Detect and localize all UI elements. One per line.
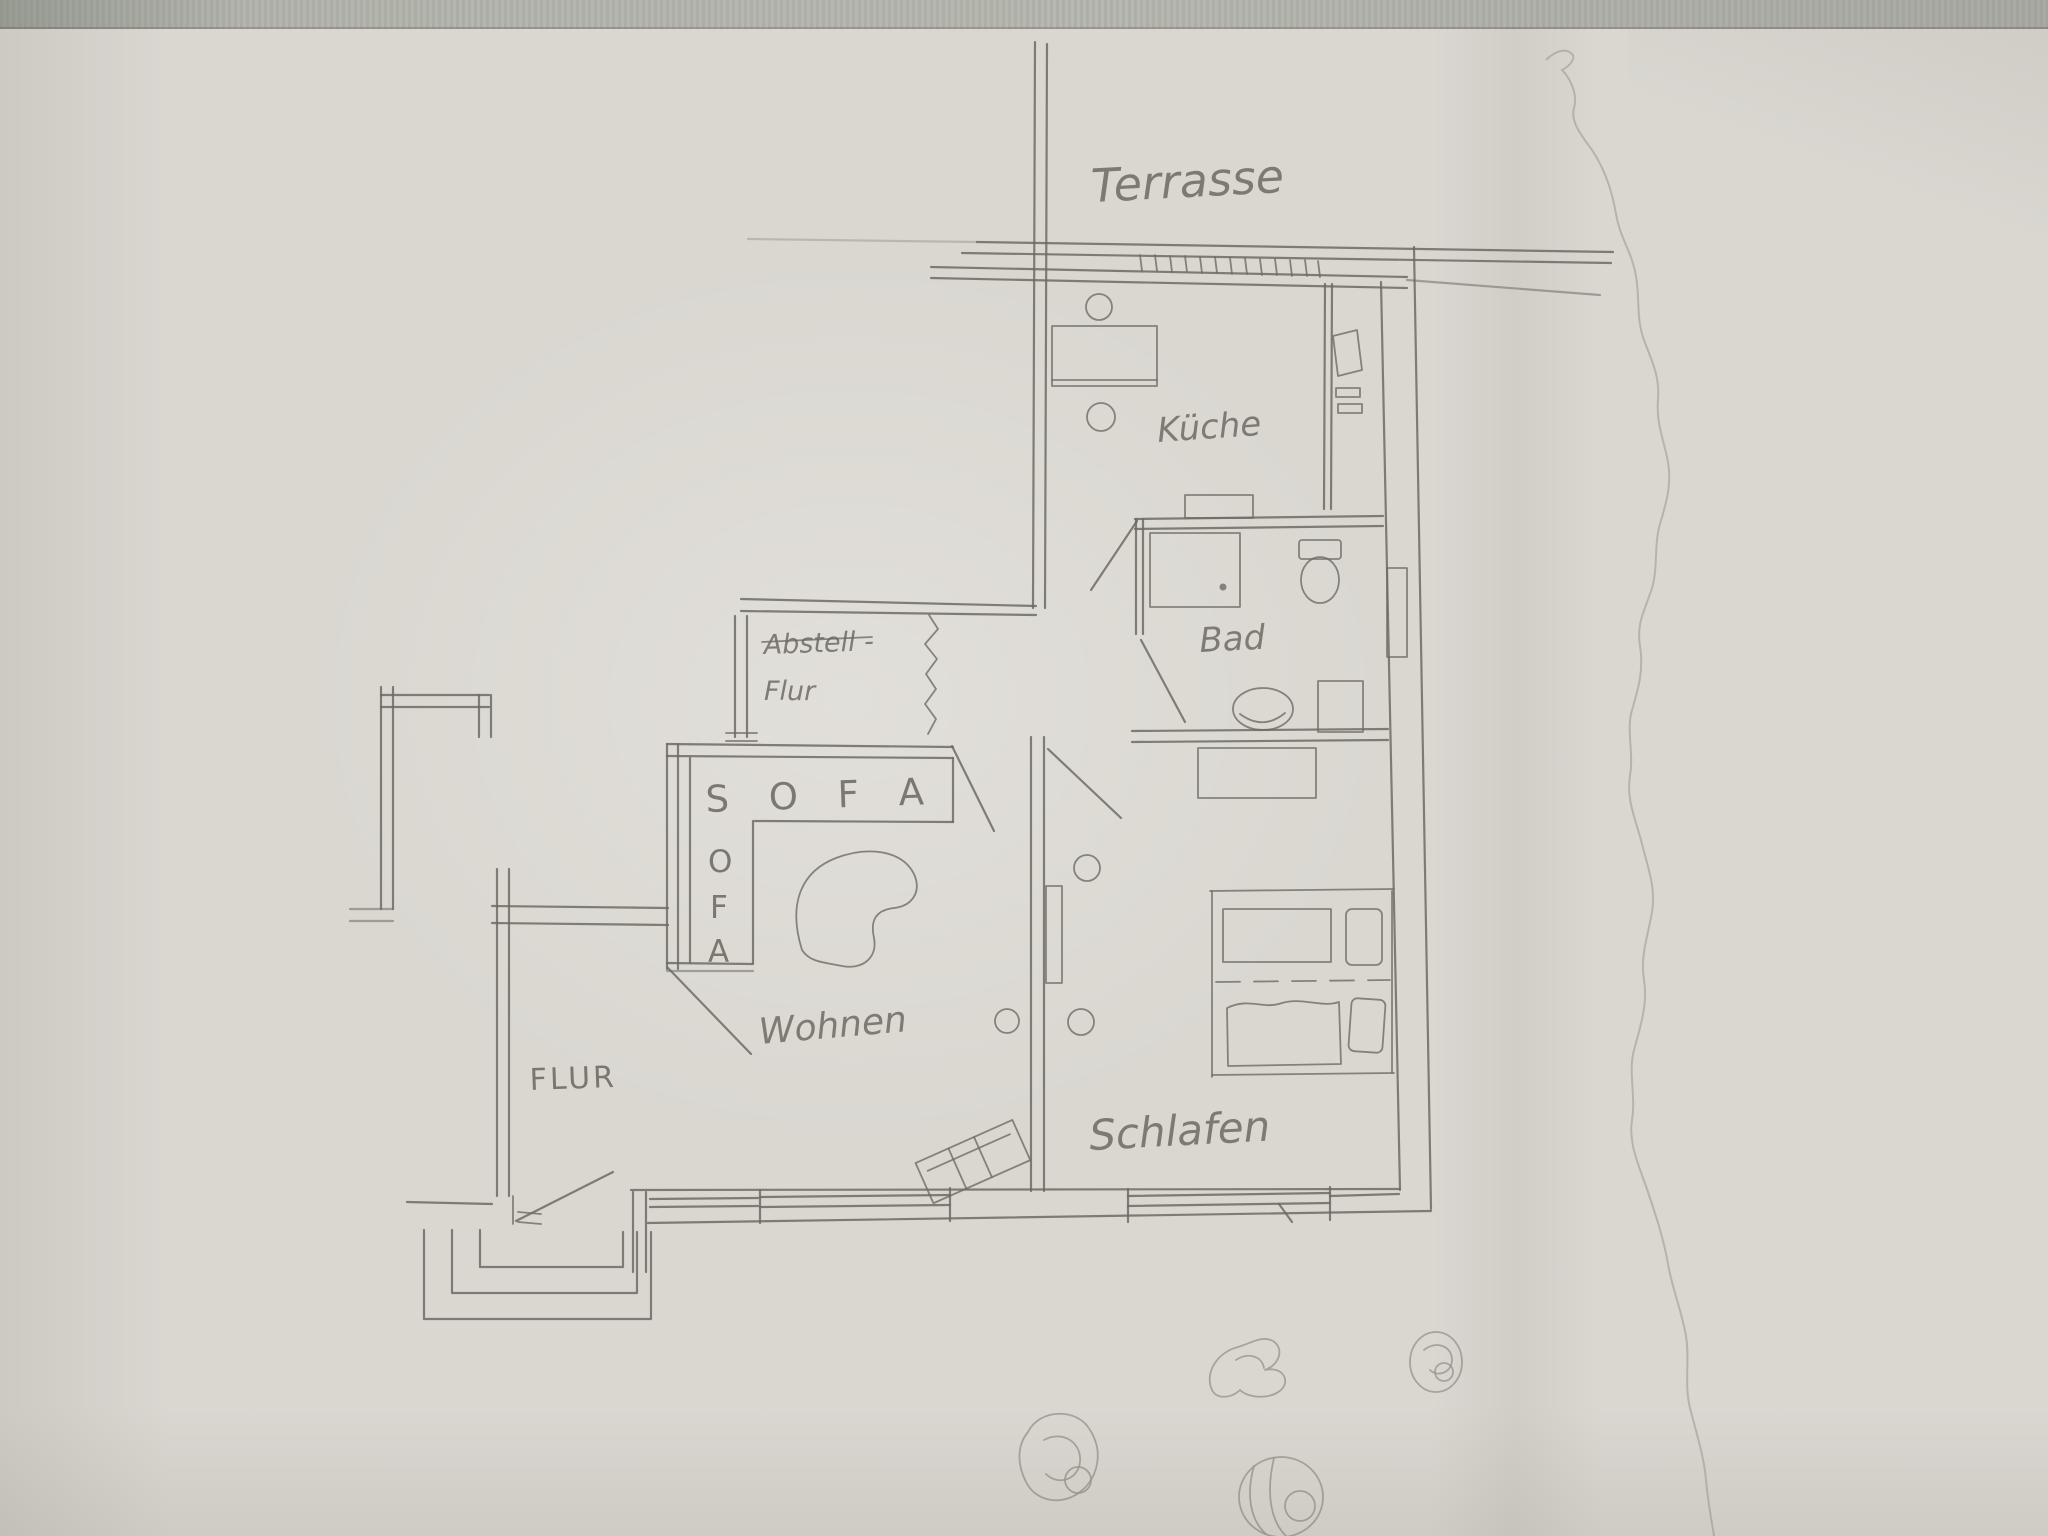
washing-machine — [1318, 681, 1363, 732]
door-knob-circle — [995, 1009, 1019, 1033]
wall-line — [977, 242, 1613, 252]
wall-break-zigzag — [925, 615, 938, 734]
wall-line — [1381, 282, 1400, 1190]
wall-line — [650, 1206, 758, 1207]
bath-label: Bad — [1198, 618, 1266, 661]
kitchen-table — [1052, 326, 1157, 386]
wall-line — [1324, 284, 1325, 509]
door-knob-circle — [1074, 855, 1100, 881]
wall-line — [648, 1211, 1431, 1223]
shower-drain — [1220, 584, 1227, 591]
storage-hall: Abstell - Flur — [761, 615, 938, 734]
wall-line — [1135, 516, 1383, 519]
sofa: S O F A O F A — [667, 758, 953, 971]
door-knob-circle — [1068, 1009, 1094, 1035]
wall-line — [931, 278, 1407, 288]
window-bedroom — [1128, 1187, 1330, 1222]
dresser — [1198, 748, 1316, 798]
hall-living-door-swing — [668, 968, 751, 1054]
kitchen-label: Küche — [1156, 404, 1263, 451]
wall-line — [1330, 1194, 1399, 1196]
wall-line — [1331, 284, 1332, 509]
sofa-edge — [755, 821, 953, 822]
pencil-doodle — [1019, 1414, 1097, 1501]
bed-frame — [1210, 889, 1394, 891]
wall-line — [407, 1202, 492, 1204]
sofa-label-vertical-f: F — [710, 890, 728, 926]
bed-pillow-bottom — [1348, 998, 1386, 1053]
wall-line — [1414, 247, 1431, 1209]
wall-line — [667, 744, 953, 747]
wall-line — [962, 253, 1611, 263]
bedroom-door-swing — [1048, 749, 1121, 818]
pencil-doodle — [1239, 1457, 1323, 1536]
bath-window — [1185, 495, 1253, 518]
wall-line — [650, 1198, 758, 1199]
bathroom: Bad — [1150, 495, 1407, 798]
wall-line — [631, 1189, 1399, 1190]
bedroom: Schlafen — [1088, 889, 1394, 1160]
pencil-doodles — [1019, 1332, 1462, 1536]
corridor-living-door-swing — [952, 746, 994, 831]
shower — [1150, 533, 1240, 607]
sofa-label-vertical-o: O — [708, 844, 732, 880]
kitchen-chair — [1087, 403, 1115, 431]
pencil-doodle — [1210, 1339, 1285, 1397]
radiator — [1387, 568, 1407, 657]
kidney-coffee-table — [796, 851, 916, 966]
bed-divider-dashed — [1216, 980, 1390, 982]
bed-frame — [1212, 1073, 1394, 1075]
washbasin — [1233, 688, 1293, 730]
wall-line — [667, 756, 953, 758]
hall: FLUR — [424, 1060, 651, 1319]
door-jamb — [518, 1222, 541, 1224]
kitchen-sink — [1333, 330, 1362, 376]
living-room: Wohnen — [757, 999, 1030, 1203]
living-label: Wohnen — [757, 999, 908, 1053]
tv-bench — [916, 1120, 1031, 1203]
toilet-bowl — [1301, 557, 1339, 603]
kitchen-chair — [1086, 294, 1112, 320]
bath-door-swing-outer — [1091, 521, 1137, 590]
wall-line — [1132, 740, 1388, 742]
wall-line-faint — [748, 239, 977, 242]
hall-label: FLUR — [529, 1060, 617, 1098]
pencil-doodle — [1410, 1332, 1462, 1392]
wall-line — [1033, 42, 1035, 608]
terrace-label: Terrasse — [1090, 149, 1286, 213]
bath-door-swing-inner — [1141, 640, 1185, 722]
sofa-label-horizontal: S O F A — [705, 770, 939, 821]
bedroom-door-leaf — [1046, 886, 1062, 983]
floor-plan-sketch: Abstell - Flur Küche Bad — [0, 0, 2048, 1536]
floor-plan-photo: Abstell - Flur Küche Bad — [0, 0, 2048, 1536]
stove-mark — [1336, 388, 1360, 397]
bed-pillow-top — [1346, 909, 1382, 965]
entrance-door-swing — [516, 1172, 613, 1221]
wall-line — [492, 923, 668, 925]
wall-line — [492, 906, 668, 908]
kitchen: Küche — [1052, 294, 1362, 451]
bed-blanket-bottom — [1227, 1001, 1341, 1066]
bedroom-label: Schlafen — [1088, 1102, 1271, 1160]
stove-mark — [1338, 404, 1362, 413]
sofa-label-vertical-a: A — [708, 934, 729, 970]
wall-line — [1135, 526, 1383, 529]
storage-hall-label-line2: Flur — [764, 676, 817, 707]
wall-line — [931, 267, 1407, 277]
wall-line — [741, 611, 1036, 615]
washbasin-inner — [1240, 713, 1285, 722]
storage-hall-label-line1: Abstell - — [761, 626, 874, 661]
wall-line — [1045, 44, 1047, 608]
wall-line — [741, 599, 1036, 606]
wall-line — [1407, 280, 1600, 295]
paper-crease-line — [1546, 51, 1714, 1536]
bed-mattress-top — [1223, 909, 1331, 962]
entrance-steps — [424, 1230, 651, 1319]
